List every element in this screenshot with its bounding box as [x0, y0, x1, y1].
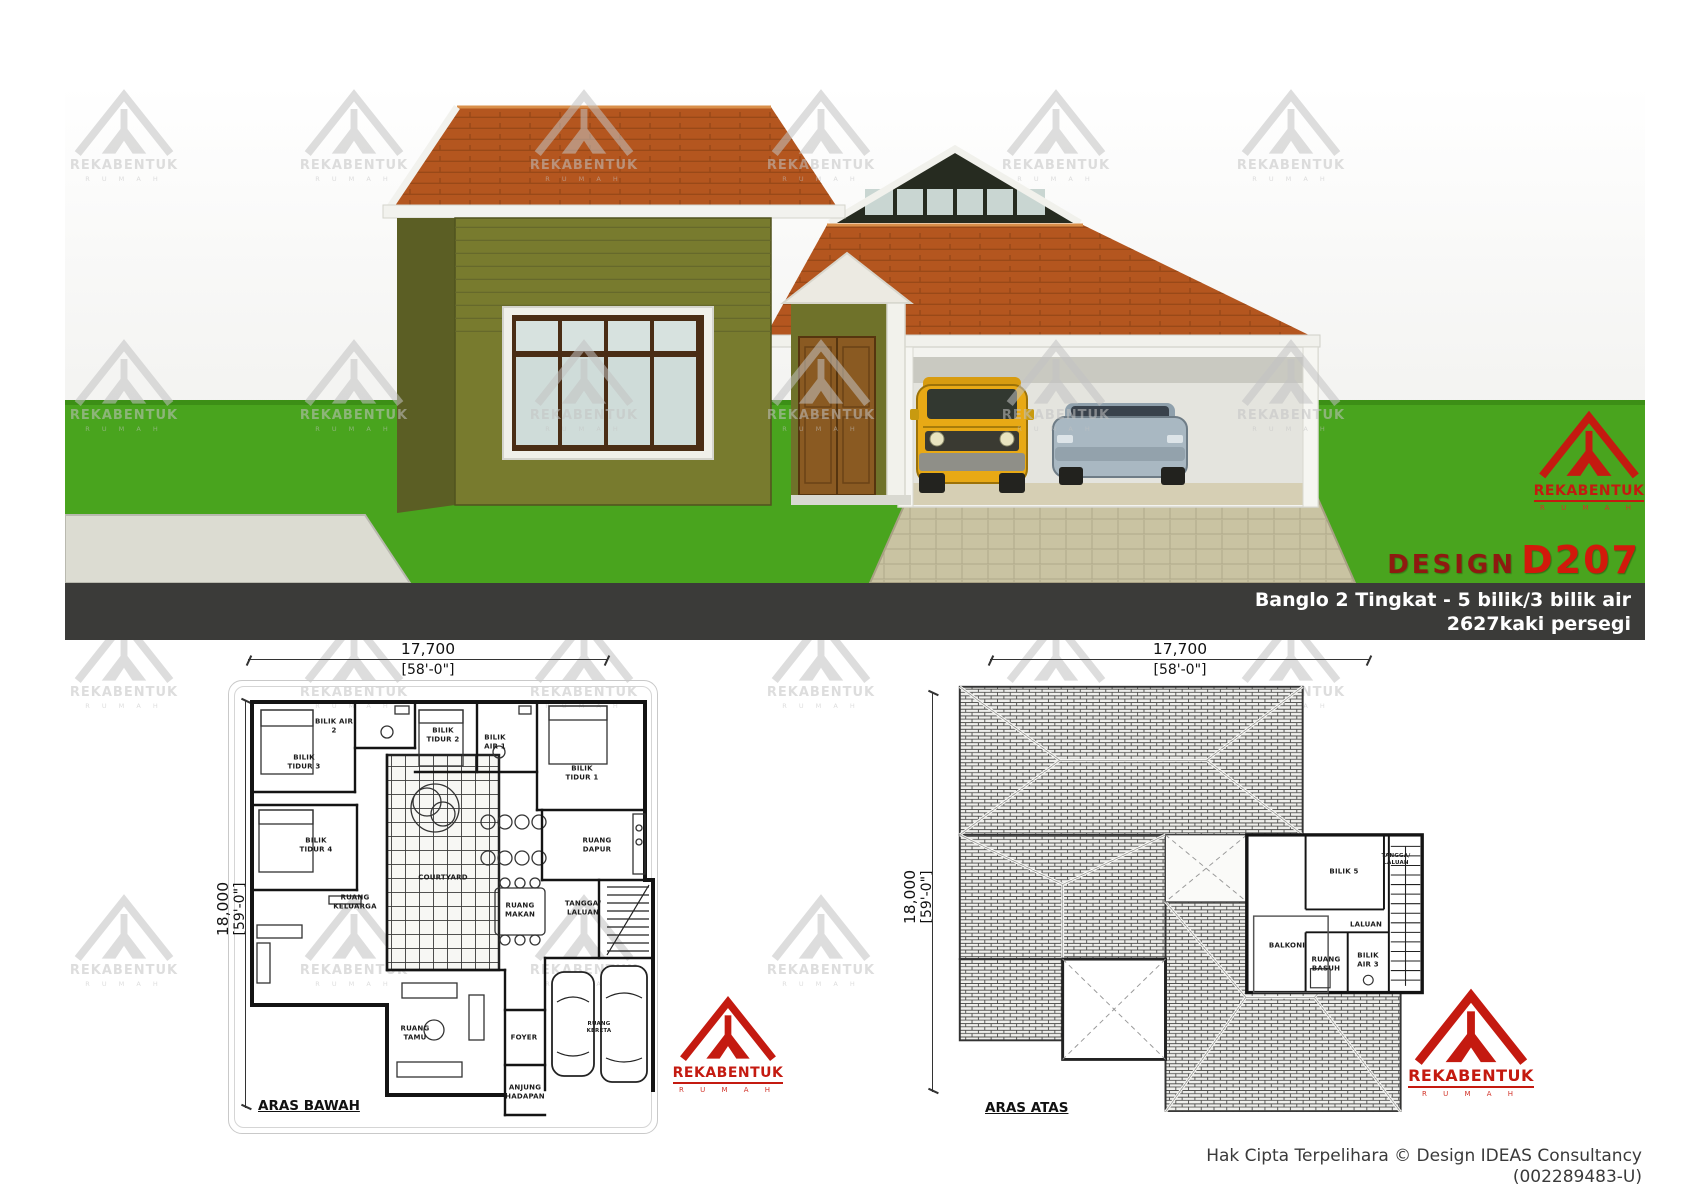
design-poster: REKABENTUK R U M A H REKABENTUK R U M A … — [0, 0, 1698, 1200]
dim-width-ft: [58'-0"] — [1154, 662, 1207, 678]
content-layer: DESIGN D207 Banglo 2 Tingkat - 5 bilik/3… — [0, 0, 1698, 1200]
room-bilik-air-3: BILIK AIR 3 — [1351, 951, 1385, 969]
upper-plan-canvas: BILIK 5 LALUAN BALKONI RUANG BASUH BILIK… — [950, 682, 1430, 1112]
logo-brand-name: REKABENTUK — [673, 1065, 784, 1084]
rekabentuk-house-arrow-icon — [678, 992, 778, 1062]
logo-brand-tagline: R U M A H — [1396, 1090, 1546, 1098]
room-ruang-makan: RUANG MAKAN — [500, 901, 540, 919]
copyright-line1: Hak Cipta Terpelihara © Design IDEAS Con… — [1082, 1146, 1642, 1167]
dim-height-label: 18,000 [59'-0"] — [901, 832, 935, 962]
upper-floor-title: ARAS ATAS — [985, 1100, 1068, 1116]
copyright-line2: (002289483-U) — [1082, 1167, 1642, 1188]
room-ruang-tamu: RUANG TAMU — [395, 1024, 435, 1042]
copyright-notice: Hak Cipta Terpelihara © Design IDEAS Con… — [1082, 1146, 1642, 1188]
dim-width-mm: 17,700 — [1153, 640, 1207, 658]
room-foyer: FOYER — [506, 1034, 542, 1043]
floor-plan-upper: 17,700 [58'-0"] 18,000 [59'-0"] — [910, 640, 1470, 1140]
room-anjung-hadapan: ANJUNG HADAPAN — [504, 1083, 546, 1101]
room-bilik-air-2: BILIK AIR 2 — [314, 717, 354, 735]
dim-width-line — [990, 659, 1370, 660]
rekabentuk-logo: REKABENTUK R U M A H — [1528, 406, 1650, 512]
design-title: DESIGN D207 — [1387, 538, 1640, 582]
logo-brand-tagline: R U M A H — [1528, 504, 1650, 512]
room-ruang-kereta: RUANG KERETA — [579, 1021, 619, 1035]
rekabentuk-house-arrow-icon — [1537, 406, 1641, 480]
info-bar: Banglo 2 Tingkat - 5 bilik/3 bilik air 2… — [65, 583, 1645, 640]
room-bilik-tidur-2: BILIK TIDUR 2 — [421, 726, 465, 744]
room-bilik-tidur-1: BILIK TIDUR 1 — [560, 764, 604, 782]
rekabentuk-logo: REKABENTUK R U M A H — [666, 992, 790, 1094]
rekabentuk-logo: REKABENTUK R U M A H — [1396, 984, 1546, 1098]
ground-plan-canvas: BILIK TIDUR 3 BILIK AIR 2 BILIK TIDUR 2 … — [237, 640, 660, 1120]
rekabentuk-house-arrow-icon — [1412, 984, 1530, 1066]
dim-height-line — [932, 692, 933, 1092]
room-ruang-basuh: RUANG BASUH — [1307, 955, 1345, 973]
room-bilik-tidur-3: BILIK TIDUR 3 — [282, 753, 326, 771]
room-ruang-keluarga: RUANG KELUARGA — [329, 893, 381, 911]
info-bar-area: 2627kaki persegi — [65, 612, 1631, 636]
room-laluan: LALUAN — [1346, 921, 1386, 930]
room-bilik-air-1: BILIK AIR 1 — [477, 733, 513, 751]
room-bilik-5: BILIK 5 — [1326, 868, 1362, 877]
room-balkoni: BALKONI — [1265, 942, 1309, 951]
stairs — [607, 885, 649, 955]
room-tangga-laluan: TANGGA/ LALUAN — [563, 899, 603, 917]
room-bilik-tidur-4: BILIK TIDUR 4 — [294, 836, 338, 854]
logo-brand-tagline: R U M A H — [666, 1086, 790, 1094]
room-tangga-laluan: TANGGA/ LALUAN — [1381, 853, 1411, 867]
design-label: DESIGN — [1387, 550, 1516, 580]
ground-floor-title: ARAS BAWAH — [258, 1098, 360, 1114]
room-ruang-dapur: RUANG DAPUR — [577, 836, 617, 854]
logo-brand-name: REKABENTUK — [1408, 1066, 1534, 1088]
room-courtyard: COURTYARD — [408, 874, 478, 883]
info-bar-subtitle: Banglo 2 Tingkat - 5 bilik/3 bilik air — [65, 588, 1631, 612]
floor-plan-ground: 17,700 [58'-0"] 18,000 [59'-0"] — [200, 640, 680, 1140]
logo-brand-name: REKABENTUK — [1534, 483, 1645, 502]
design-code: D207 — [1521, 538, 1640, 582]
upper-plan-drawing — [950, 682, 1430, 1112]
